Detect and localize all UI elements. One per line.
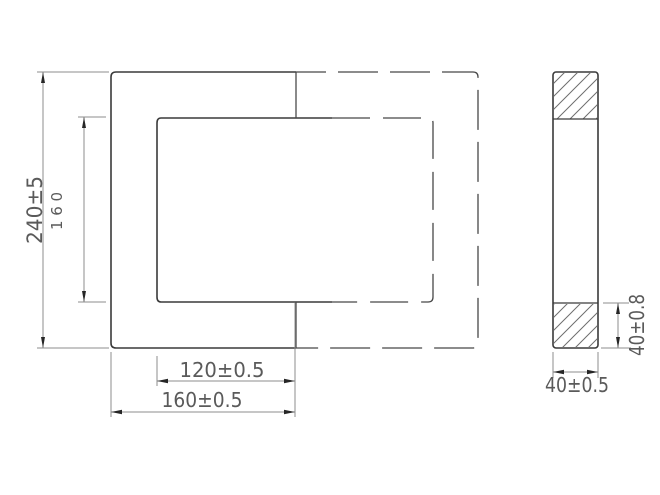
arrowhead-right — [284, 379, 295, 383]
technical-drawing: 240±5 160 120±0.5 — [0, 0, 660, 495]
dim-window-height: 160 — [48, 117, 106, 302]
front-inner-outline — [157, 118, 332, 302]
hatch-area-top — [554, 73, 597, 119]
arrowhead-up — [82, 117, 86, 128]
arrowhead-left — [111, 410, 122, 414]
front-outer-outline — [111, 72, 296, 348]
arrowhead-down — [616, 337, 620, 348]
dim-thickness: 40±0.5 — [545, 352, 609, 397]
drawing-page: 240±5 160 120±0.5 — [0, 0, 660, 495]
arrowhead-down — [41, 337, 45, 348]
arrowhead-right — [284, 410, 295, 414]
side-view: 40±0.8 40±0.5 — [545, 72, 649, 397]
hidden-outer-outline — [296, 72, 478, 348]
dim-label-inner-width: 120±0.5 — [180, 358, 265, 382]
front-view: 240±5 160 120±0.5 — [23, 72, 478, 417]
hatch-area-bottom — [554, 304, 597, 347]
hidden-inner-outline — [332, 118, 433, 302]
dim-label-end-section-height: 40±0.8 — [625, 294, 649, 356]
arrowhead-up — [41, 72, 45, 83]
arrowhead-left — [157, 379, 168, 383]
dim-label-overall-height: 240±5 — [23, 176, 47, 244]
dim-label-thickness: 40±0.5 — [545, 373, 609, 397]
arrowhead-up — [616, 303, 620, 314]
dim-overall-height: 240±5 — [23, 72, 109, 348]
arrowhead-down — [82, 291, 86, 302]
dim-end-section-height: 40±0.8 — [601, 294, 649, 356]
dim-label-window-height: 160 — [48, 192, 66, 230]
dim-label-outer-width: 160±0.5 — [162, 388, 243, 412]
